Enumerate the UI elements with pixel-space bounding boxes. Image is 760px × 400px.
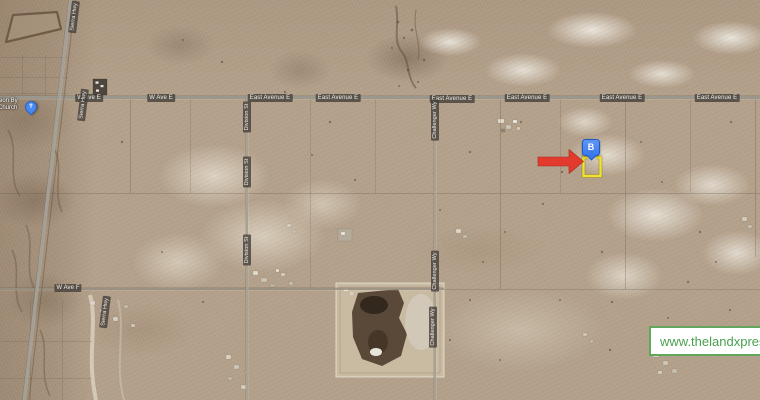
- parcel-line: [0, 193, 760, 194]
- parcel-line: [0, 57, 68, 58]
- terrain-features: [0, 0, 760, 400]
- road-challenger-way: [434, 97, 436, 400]
- dirt-track-outline: [6, 12, 61, 42]
- parcel-line: [130, 97, 131, 193]
- watermark: www.thelandxpress.: [649, 326, 760, 356]
- road-avenue-f: [0, 288, 444, 290]
- road-avenue-f-faint: [444, 289, 760, 290]
- parcel-line: [45, 55, 46, 95]
- cross-icon: ✝: [26, 102, 36, 112]
- satellite-map[interactable]: W Ave E W Ave E East Avenue E East Avenu…: [0, 0, 760, 400]
- parcel-line: [690, 97, 691, 193]
- ridge-lines: [8, 130, 62, 396]
- pin-b-label: B: [588, 142, 595, 152]
- parcel-line: [22, 55, 23, 95]
- parcel-line: [755, 97, 756, 257]
- parcel-line: [62, 300, 63, 400]
- road-division-st: [246, 97, 248, 400]
- map-pin-b[interactable]: B: [582, 139, 600, 156]
- parcel-line: [190, 97, 191, 193]
- building-cluster: [93, 79, 107, 95]
- parcel-line: [0, 378, 92, 379]
- excavation-facility: [336, 283, 444, 377]
- watermark-text: www.thelandxpress.: [660, 334, 760, 349]
- desert-wash: [396, 6, 416, 88]
- parcel-line: [560, 97, 561, 193]
- parcel-line: [375, 97, 376, 193]
- road-avenue-e: [0, 96, 760, 99]
- parcel-line: [0, 77, 68, 78]
- parcel-line: [0, 341, 92, 342]
